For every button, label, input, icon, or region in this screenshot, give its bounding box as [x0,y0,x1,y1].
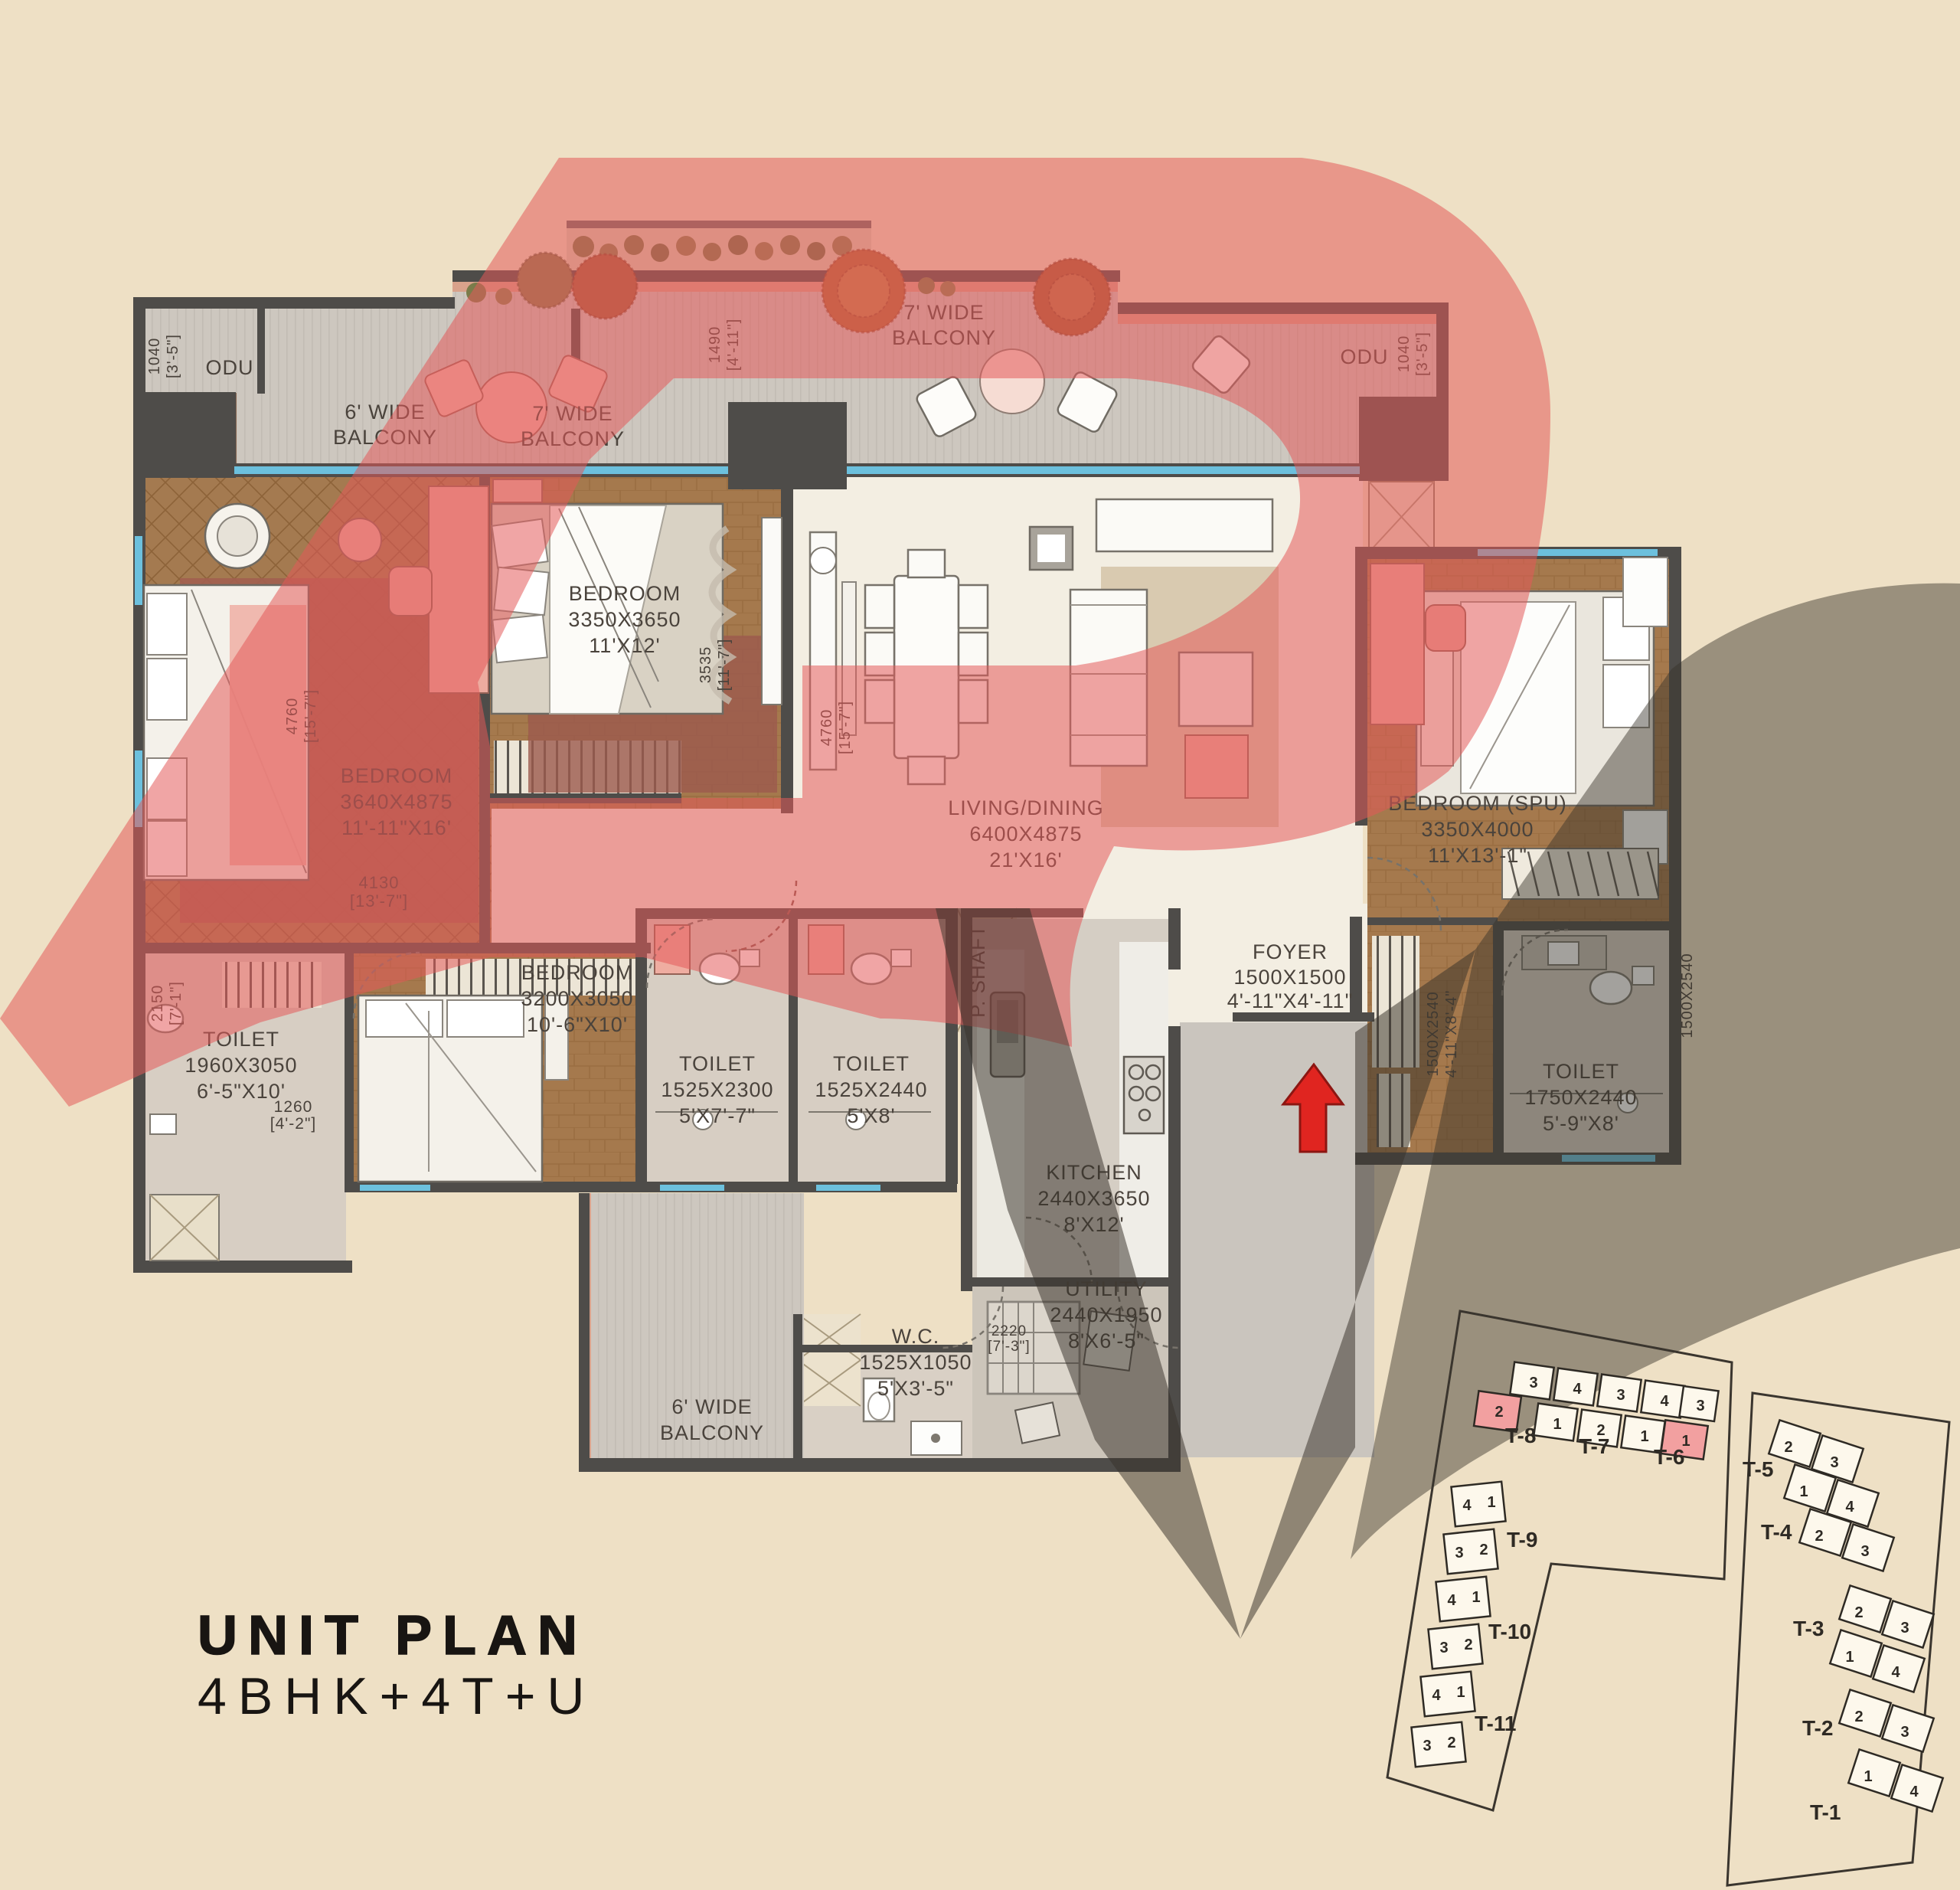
svg-text:5'X8': 5'X8' [847,1104,895,1127]
svg-text:3200X3050: 3200X3050 [521,987,633,1010]
svg-text:2: 2 [1479,1542,1488,1558]
svg-text:2220: 2220 [991,1323,1027,1339]
svg-text:4: 4 [1462,1497,1472,1514]
svg-text:3: 3 [1439,1640,1448,1656]
svg-text:1260: 1260 [274,1098,313,1116]
svg-text:6' WIDE: 6' WIDE [671,1395,752,1418]
svg-text:1525X2300: 1525X2300 [661,1078,773,1101]
svg-text:FOYER: FOYER [1253,940,1328,963]
svg-text:1: 1 [1845,1649,1854,1666]
svg-text:T-1: T-1 [1810,1800,1841,1824]
svg-text:3: 3 [1830,1454,1838,1471]
svg-text:4: 4 [1447,1592,1456,1609]
svg-text:1525X1050: 1525X1050 [859,1351,972,1374]
svg-text:4: 4 [1432,1687,1441,1704]
svg-text:3350X4000: 3350X4000 [1421,818,1534,841]
svg-text:T-4: T-4 [1761,1520,1792,1544]
svg-text:T-5: T-5 [1743,1457,1773,1481]
svg-text:2: 2 [1784,1439,1792,1456]
svg-text:2: 2 [1854,1709,1863,1725]
svg-text:[4'-2"]: [4'-2"] [270,1115,316,1133]
svg-text:3: 3 [1529,1375,1537,1391]
svg-text:1040: 1040 [146,338,163,375]
svg-text:1: 1 [1640,1428,1648,1445]
svg-text:1: 1 [1799,1483,1808,1500]
svg-text:2: 2 [1494,1404,1503,1421]
svg-text:3: 3 [1900,1724,1909,1741]
svg-text:T-8: T-8 [1505,1424,1536,1447]
svg-text:5'X3'-5": 5'X3'-5" [877,1377,954,1400]
svg-text:2: 2 [1447,1735,1455,1751]
svg-text:1: 1 [1487,1494,1495,1511]
svg-text:6'-5"X10': 6'-5"X10' [197,1080,286,1103]
svg-text:T-9: T-9 [1507,1528,1537,1552]
svg-text:1: 1 [1456,1684,1465,1701]
svg-text:10'-6"X10': 10'-6"X10' [527,1013,628,1036]
svg-text:3: 3 [1423,1738,1431,1754]
svg-text:2: 2 [1596,1422,1605,1439]
svg-text:1: 1 [1864,1768,1872,1785]
svg-text:[11'-7"]: [11'-7"] [716,639,733,692]
svg-text:T-6: T-6 [1654,1445,1684,1469]
svg-text:1500X1500: 1500X1500 [1233,966,1346,989]
svg-text:1: 1 [1553,1416,1561,1433]
svg-text:1960X3050: 1960X3050 [185,1054,297,1077]
svg-text:[3'-5"]: [3'-5"] [165,334,181,378]
svg-text:4: 4 [1573,1381,1582,1398]
svg-text:BEDROOM: BEDROOM [521,961,634,984]
svg-text:4: 4 [1891,1664,1900,1681]
svg-text:11'X12': 11'X12' [589,634,660,657]
svg-text:4BHK+4T+U: 4BHK+4T+U [198,1667,596,1725]
svg-text:T-3: T-3 [1793,1617,1824,1640]
svg-text:UNIT PLAN: UNIT PLAN [198,1605,588,1666]
svg-text:TOILET: TOILET [833,1052,910,1075]
svg-text:W.C.: W.C. [892,1325,940,1348]
svg-text:T-11: T-11 [1475,1712,1516,1735]
svg-text:11'X13'-1": 11'X13'-1" [1428,844,1527,867]
svg-text:3535: 3535 [697,646,714,684]
svg-text:TOILET: TOILET [679,1052,756,1075]
svg-text:4'-11"X4'-11": 4'-11"X4'-11" [1227,989,1354,1012]
svg-text:4: 4 [1909,1784,1919,1800]
svg-text:2: 2 [1464,1637,1472,1653]
svg-text:4: 4 [1845,1499,1854,1516]
svg-text:BALCONY: BALCONY [660,1421,764,1444]
svg-text:5'X7'-7": 5'X7'-7" [679,1104,756,1127]
svg-text:ODU: ODU [206,356,254,379]
svg-text:T-10: T-10 [1488,1620,1531,1643]
svg-text:4: 4 [1660,1393,1669,1410]
svg-text:1: 1 [1472,1589,1480,1606]
svg-text:3: 3 [1616,1387,1625,1404]
svg-text:1: 1 [1681,1433,1690,1450]
svg-text:2: 2 [1815,1528,1823,1545]
svg-text:[7'-3"]: [7'-3"] [988,1339,1030,1355]
svg-text:3: 3 [1900,1620,1909,1637]
svg-text:3: 3 [1860,1543,1869,1560]
svg-text:T-2: T-2 [1802,1716,1833,1740]
svg-text:BEDROOM: BEDROOM [569,582,681,605]
svg-text:3: 3 [1455,1545,1463,1561]
svg-text:2: 2 [1854,1604,1863,1621]
svg-text:3350X3650: 3350X3650 [568,608,681,631]
svg-text:1525X2440: 1525X2440 [815,1078,927,1101]
svg-text:BEDROOM (SPU): BEDROOM (SPU) [1388,792,1567,815]
svg-text:3: 3 [1696,1398,1704,1414]
